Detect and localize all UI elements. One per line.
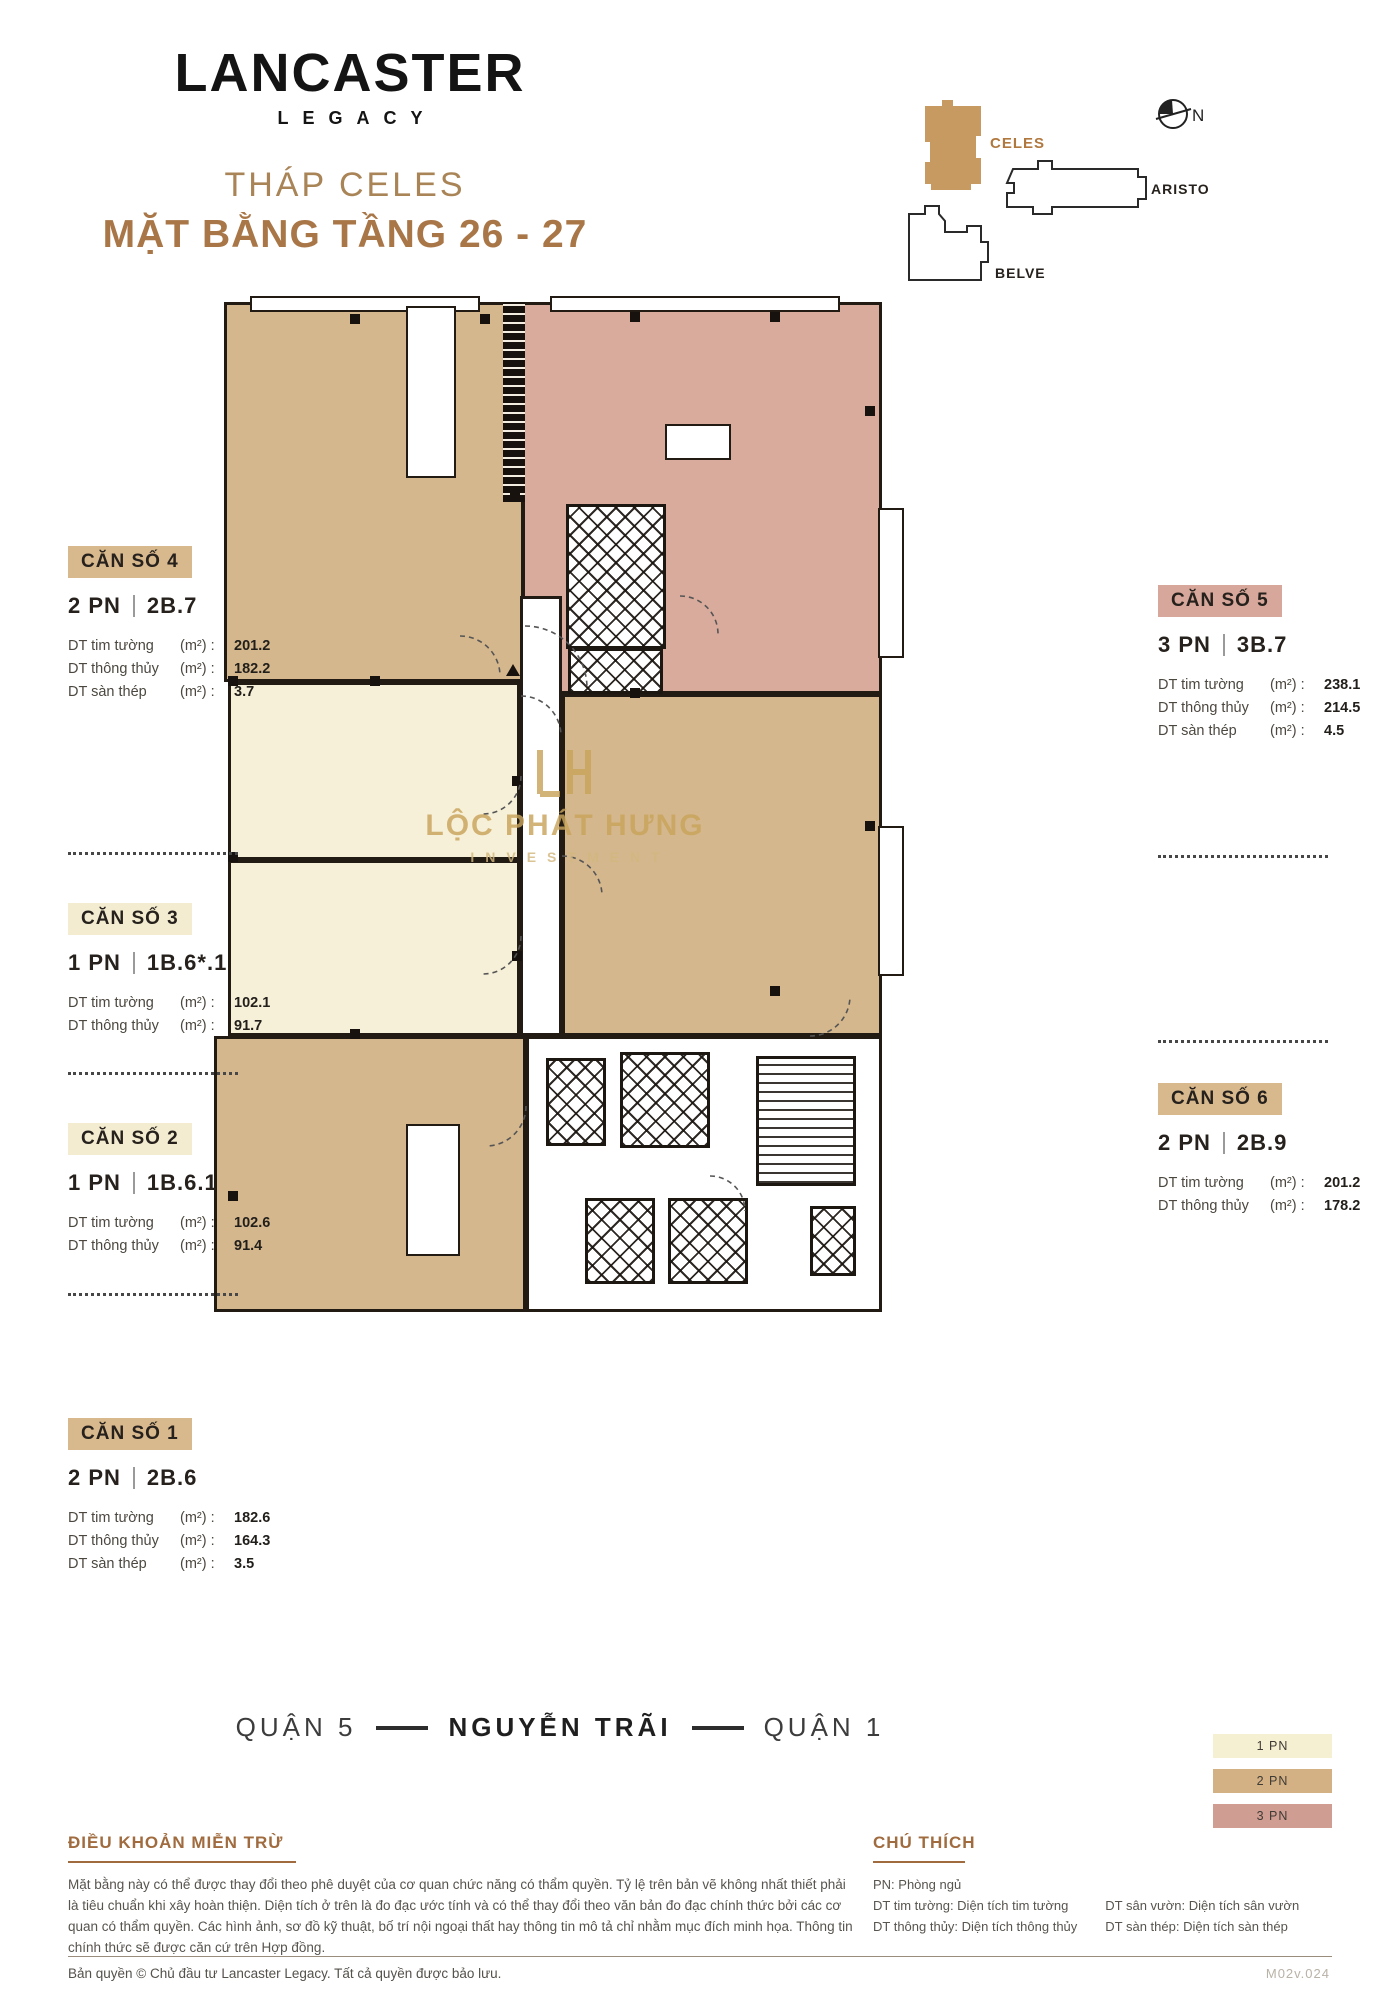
metric-name: DT tim tường <box>68 635 180 658</box>
unit-type-line: 2 PN 2B.9 <box>1158 1130 1400 1156</box>
unit-type-line: 2 PN 2B.7 <box>68 593 368 619</box>
column <box>865 406 875 416</box>
elevator-box <box>620 1052 710 1148</box>
watermark: LỘC PHÁT HƯNG INVESTMENT <box>400 742 730 865</box>
site-minimap: CELES ARISTO BELVE N <box>895 66 1235 284</box>
unit-metrics: DT tim tường(m²) :238.1 DT thông thủy(m²… <box>1158 674 1400 744</box>
metric-name: DT tim tường <box>1158 1172 1270 1195</box>
metric-value: 91.7 <box>234 1015 262 1038</box>
divider <box>133 1467 135 1489</box>
celes-building <box>925 100 981 190</box>
dotted-separator <box>68 1293 238 1296</box>
column <box>370 676 380 686</box>
metric-value: 178.2 <box>1324 1195 1360 1218</box>
celes-label: CELES <box>990 135 1045 152</box>
divider <box>133 952 135 974</box>
metric-value: 164.3 <box>234 1530 270 1553</box>
footer-version: M02v.024 <box>1266 1966 1330 1981</box>
unit-bedrooms: 2 PN <box>1158 1130 1211 1156</box>
metric-name: DT sàn thép <box>1158 720 1270 743</box>
unit-badge: CĂN SỐ 4 <box>68 546 192 578</box>
brand-name: LANCASTER <box>168 46 532 100</box>
divider <box>1223 634 1225 656</box>
legend-swatch-3pn: 3 PN <box>1213 1804 1332 1828</box>
metric-unit: (m²) : <box>1270 674 1320 697</box>
column <box>480 314 490 324</box>
metric-unit: (m²) : <box>180 1235 230 1258</box>
unit-type-line: 1 PN 1B.6*.1 <box>68 950 368 976</box>
unit-info-can-so-3: CĂN SỐ 3 1 PN 1B.6*.1 DT tim tường(m²) :… <box>68 903 368 1038</box>
elevator-box <box>668 1198 748 1284</box>
belve-label: BELVE <box>995 265 1046 281</box>
metric-unit: (m²) : <box>180 658 230 681</box>
metric-unit: (m²) : <box>180 1212 230 1235</box>
metric-value: 91.4 <box>234 1235 262 1258</box>
metric-unit: (m²) : <box>1270 1195 1320 1218</box>
column <box>630 688 640 698</box>
unit-type-line: 3 PN 3B.7 <box>1158 632 1400 658</box>
divider <box>133 595 135 617</box>
disclaimer-section: ĐIỀU KHOẢN MIỄN TRỪ Mặt bằng này có thể … <box>68 1833 858 1959</box>
notes-column-1: PN: Phòng ngủ DT tim tường: Diện tích ti… <box>873 1875 1077 1938</box>
footer-copyright: Bản quyền © Chủ đầu tư Lancaster Legacy.… <box>68 1966 501 1981</box>
metric-name: DT tim tường <box>1158 674 1270 697</box>
column <box>512 951 522 961</box>
belve-building <box>909 206 988 280</box>
metric-name: DT thông thủy <box>68 1530 180 1553</box>
metric-unit: (m²) : <box>180 992 230 1015</box>
metric-value: 3.7 <box>234 681 254 704</box>
watermark-name: LỘC PHÁT HƯNG <box>400 809 730 843</box>
watermark-logo-icon <box>532 742 598 800</box>
street-name: NGUYỄN TRÃI <box>448 1712 671 1743</box>
metric-unit: (m²) : <box>180 1507 230 1530</box>
unit-info-can-so-6: CĂN SỐ 6 2 PN 2B.9 DT tim tường(m²) :201… <box>1158 1083 1400 1218</box>
note-item: DT sân vườn: Diện tích sân vườn <box>1105 1896 1299 1917</box>
unit-metrics: DT tim tường(m²) :102.1 DT thông thủy(m²… <box>68 992 368 1038</box>
street-dash <box>692 1726 744 1730</box>
metric-unit: (m²) : <box>180 635 230 658</box>
column <box>510 486 520 496</box>
metric-name: DT sàn thép <box>68 1553 180 1576</box>
street-dash <box>376 1726 428 1730</box>
aristo-label: ARISTO <box>1151 181 1210 197</box>
metric-unit: (m²) : <box>180 1530 230 1553</box>
unit-info-can-so-5: CĂN SỐ 5 3 PN 3B.7 DT tim tường(m²) :238… <box>1158 585 1400 744</box>
stair-core <box>566 504 666 649</box>
district-right-label: QUẬN 1 <box>764 1712 885 1743</box>
metric-value: 201.2 <box>234 635 270 658</box>
metric-value: 102.1 <box>234 992 270 1015</box>
stair-flight <box>756 1056 856 1186</box>
unit-info-can-so-4: CĂN SỐ 4 2 PN 2B.7 DT tim tường(m²) :201… <box>68 546 368 705</box>
north-label: N <box>1192 106 1204 125</box>
legend-label: 1 PN <box>1257 1739 1289 1753</box>
metric-name: DT thông thủy <box>1158 1195 1270 1218</box>
legend-label: 3 PN <box>1257 1809 1289 1823</box>
shaft-band <box>503 302 525 502</box>
unit-info-can-so-1: CĂN SỐ 1 2 PN 2B.6 DT tim tường(m²) :182… <box>68 1418 368 1577</box>
heading-underline <box>68 1861 296 1863</box>
unit-badge: CĂN SỐ 6 <box>1158 1083 1282 1115</box>
unit-type-line: 1 PN 1B.6.1 <box>68 1170 368 1196</box>
footer-divider <box>68 1956 1332 1957</box>
balcony-strip <box>550 296 840 312</box>
unit-type-line: 2 PN 2B.6 <box>68 1465 368 1491</box>
unit-badge: CĂN SỐ 5 <box>1158 585 1282 617</box>
elevator-box <box>585 1198 655 1284</box>
metric-unit: (m²) : <box>180 1553 230 1576</box>
unit-metrics: DT tim tường(m²) :102.6 DT thông thủy(m²… <box>68 1212 368 1258</box>
unit-metrics: DT tim tường(m²) :201.2 DT thông thủy(m²… <box>68 635 368 705</box>
metric-name: DT tim tường <box>68 1212 180 1235</box>
loggia-box <box>665 424 731 460</box>
metric-value: 214.5 <box>1324 697 1360 720</box>
unit-code: 2B.9 <box>1237 1130 1287 1156</box>
district-left-label: QUẬN 5 <box>236 1712 357 1743</box>
note-item: PN: Phòng ngủ <box>873 1875 1077 1896</box>
dotted-separator <box>68 1072 238 1075</box>
heading-underline <box>873 1861 965 1863</box>
page-title: MẶT BẰNG TẦNG 26 - 27 <box>95 213 595 257</box>
divider <box>133 1172 135 1194</box>
legend-label: 2 PN <box>1257 1774 1289 1788</box>
loggia-box <box>406 1124 460 1256</box>
unit-bedrooms: 3 PN <box>1158 632 1211 658</box>
metric-name: DT thông thủy <box>68 658 180 681</box>
unit-bedrooms: 1 PN <box>68 950 121 976</box>
metric-value: 201.2 <box>1324 1172 1360 1195</box>
unit-code: 2B.7 <box>147 593 197 619</box>
note-item: DT thông thủy: Diện tích thông thủy <box>873 1917 1077 1938</box>
metric-value: 238.1 <box>1324 674 1360 697</box>
metric-unit: (m²) : <box>1270 697 1320 720</box>
entry-arrow-icon <box>506 664 520 676</box>
notes-section: CHÚ THÍCH PN: Phòng ngủ DT tim tường: Di… <box>873 1833 1353 1938</box>
notes-column-2: DT sân vườn: Diện tích sân vườn DT sàn t… <box>1105 1875 1299 1938</box>
unit-bedrooms: 2 PN <box>68 1465 121 1491</box>
loggia-box <box>406 306 456 478</box>
column <box>630 312 640 322</box>
dotted-separator <box>1158 855 1328 858</box>
metric-value: 3.5 <box>234 1553 254 1576</box>
elevator-box <box>568 648 663 694</box>
note-item: DT tim tường: Diện tích tim tường <box>873 1896 1077 1917</box>
unit-badge: CĂN SỐ 3 <box>68 903 192 935</box>
unit-code: 3B.7 <box>1237 632 1287 658</box>
metric-value: 102.6 <box>234 1212 270 1235</box>
column <box>350 314 360 324</box>
metric-unit: (m²) : <box>180 681 230 704</box>
metric-value: 182.2 <box>234 658 270 681</box>
metric-unit: (m²) : <box>1270 1172 1320 1195</box>
unit-metrics: DT tim tường(m²) :182.6 DT thông thủy(m²… <box>68 1507 368 1577</box>
notes-heading: CHÚ THÍCH <box>873 1833 1353 1853</box>
metric-name: DT thông thủy <box>1158 697 1270 720</box>
unit-info-can-so-2: CĂN SỐ 2 1 PN 1B.6.1 DT tim tường(m²) :1… <box>68 1123 368 1258</box>
legend-swatch-2pn: 2 PN <box>1213 1769 1332 1793</box>
metric-unit: (m²) : <box>1270 720 1320 743</box>
dotted-separator <box>1158 1040 1328 1043</box>
shaft-box <box>810 1206 856 1276</box>
watermark-subname: INVESTMENT <box>400 849 730 865</box>
aristo-building <box>1007 161 1146 214</box>
balcony-box <box>878 826 904 976</box>
metric-name: DT thông thủy <box>68 1235 180 1258</box>
bedroom-legend: 1 PN 2 PN 3 PN <box>1213 1734 1332 1839</box>
unit-code: 2B.6 <box>147 1465 197 1491</box>
divider <box>1223 1132 1225 1154</box>
unit-badge: CĂN SỐ 2 <box>68 1123 192 1155</box>
metric-name: DT tim tường <box>68 992 180 1015</box>
metric-name: DT tim tường <box>68 1507 180 1530</box>
brand-logo: LANCASTER LEGACY <box>168 46 532 129</box>
unit-code: 1B.6.1 <box>147 1170 218 1196</box>
dotted-separator <box>68 852 238 855</box>
brochure-page: LANCASTER LEGACY THÁP CELES MẶT BẰNG TẦN… <box>0 0 1400 2000</box>
metric-name: DT thông thủy <box>68 1015 180 1038</box>
column <box>770 986 780 996</box>
metric-unit: (m²) : <box>180 1015 230 1038</box>
title-block: THÁP CELES MẶT BẰNG TẦNG 26 - 27 <box>95 166 595 257</box>
street-row: QUẬN 5 NGUYỄN TRÃI QUẬN 1 <box>210 1712 910 1743</box>
unit-metrics: DT tim tường(m²) :201.2 DT thông thủy(m²… <box>1158 1172 1400 1218</box>
column <box>770 312 780 322</box>
note-item: DT sàn thép: Diện tích sàn thép <box>1105 1917 1299 1938</box>
disclaimer-heading: ĐIỀU KHOẢN MIỄN TRỪ <box>68 1833 858 1853</box>
north-compass-icon: N <box>1156 100 1204 128</box>
legend-swatch-1pn: 1 PN <box>1213 1734 1332 1758</box>
brand-subname: LEGACY <box>168 108 532 129</box>
metric-name: DT sàn thép <box>68 681 180 704</box>
elevator-box <box>546 1058 606 1146</box>
balcony-box <box>878 508 904 658</box>
tower-name: THÁP CELES <box>95 166 595 205</box>
disclaimer-body: Mặt bằng này có thể được thay đổi theo p… <box>68 1875 858 1959</box>
column <box>865 821 875 831</box>
unit-bedrooms: 1 PN <box>68 1170 121 1196</box>
metric-value: 4.5 <box>1324 720 1344 743</box>
unit-bedrooms: 2 PN <box>68 593 121 619</box>
metric-value: 182.6 <box>234 1507 270 1530</box>
unit-badge: CĂN SỐ 1 <box>68 1418 192 1450</box>
unit-code: 1B.6*.1 <box>147 950 227 976</box>
